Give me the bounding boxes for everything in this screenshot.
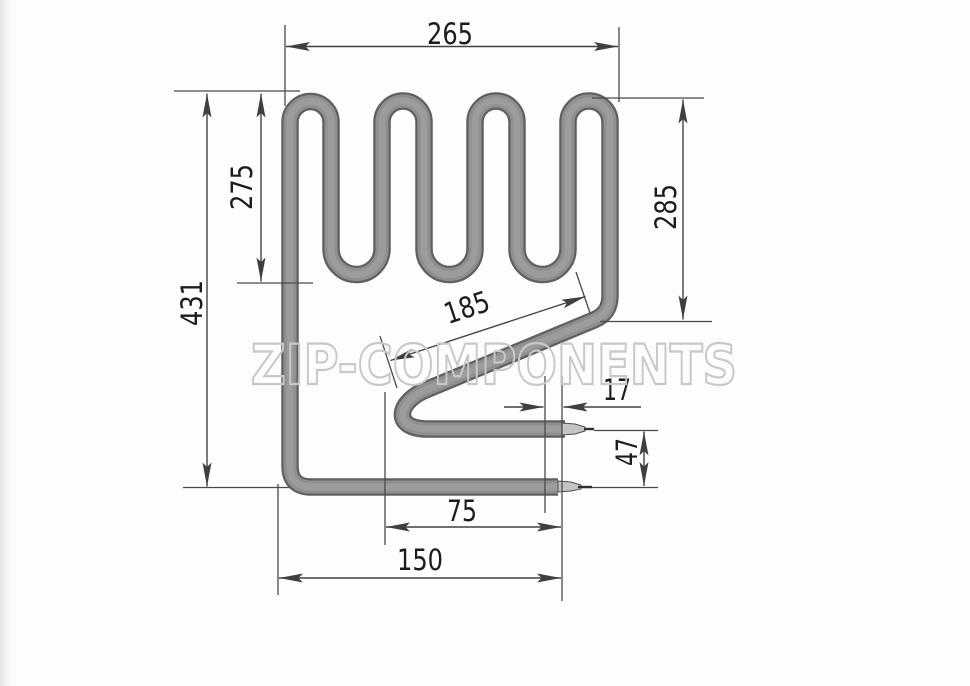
extension-line-185-right: [576, 272, 590, 313]
dim-label-75: 75: [447, 494, 477, 528]
dim-label-265: 265: [427, 17, 473, 51]
extension-lines: [174, 25, 712, 601]
dim-label-285: 285: [649, 184, 683, 230]
heating-element-schematic: 265 431 275 285 185 17 47 75 150 ZIP-COM…: [0, 0, 970, 686]
dim-label-431: 431: [175, 280, 209, 326]
scanned-technical-drawing: 265 431 275 285 185 17 47 75 150 ZIP-COM…: [0, 0, 970, 686]
terminal-crimp-middle: [562, 423, 585, 435]
dim-label-150: 150: [397, 543, 443, 577]
dim-label-275: 275: [225, 164, 259, 210]
dim-label-185: 185: [440, 284, 494, 331]
watermark-text: ZIP-COMPONENTS: [251, 333, 737, 397]
dim-label-47: 47: [610, 438, 644, 466]
